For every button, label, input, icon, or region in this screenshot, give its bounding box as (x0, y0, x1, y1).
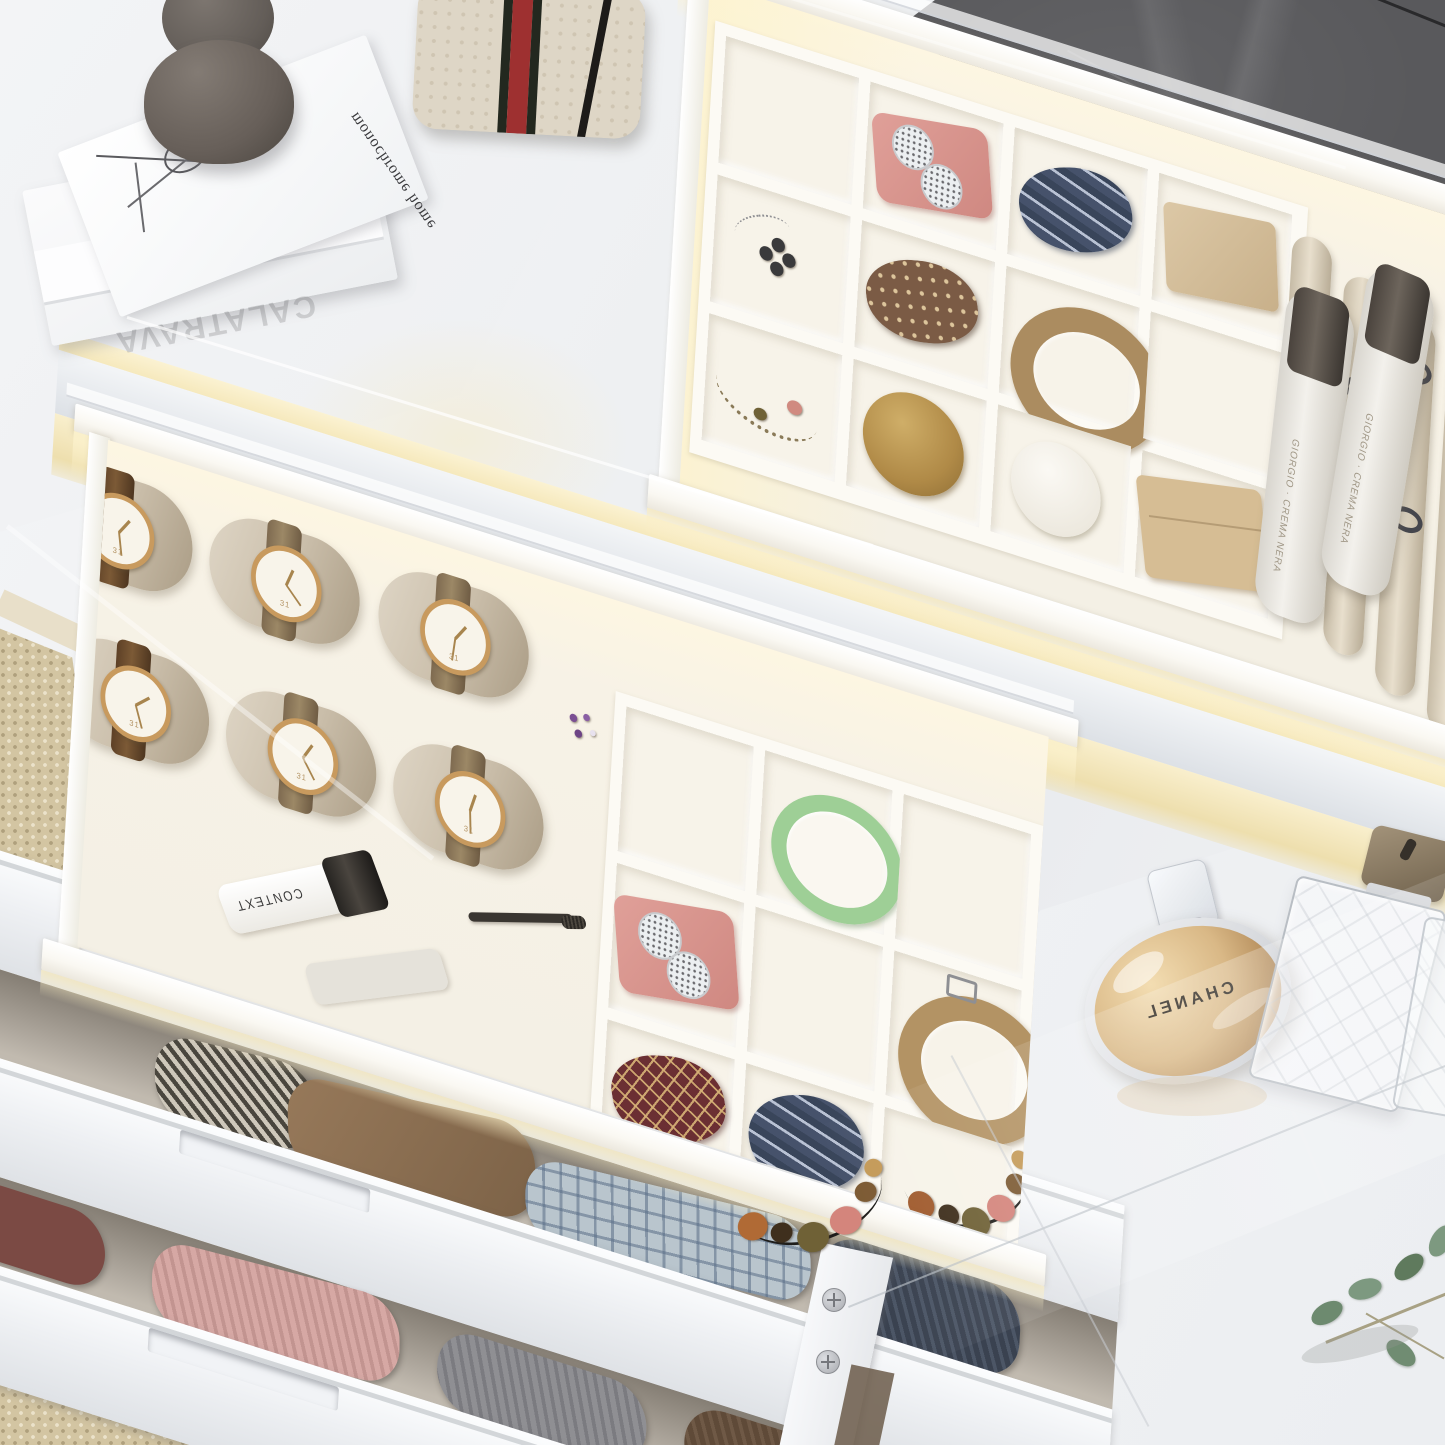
tan-jewelry-box (1163, 201, 1279, 313)
vanity-product-photo: 31 31 31 31 31 (0, 0, 1445, 1445)
watch-pillow: 31 (390, 731, 546, 883)
brown-dotted-tie (861, 255, 983, 348)
book-cover-title-wrap: monochrome home (346, 109, 440, 233)
compartment-cell (618, 706, 754, 891)
screw (822, 1288, 846, 1312)
compartment-cell (846, 359, 987, 528)
compartment-cell (702, 313, 843, 482)
tube-brand-text: CONTEXT (233, 885, 305, 914)
compartment-cell (999, 266, 1140, 435)
white-round-box (1008, 430, 1103, 549)
book-cover-title: monochrome home (346, 109, 440, 233)
watch: 31 (98, 656, 173, 751)
watch-pillow: 31 (206, 505, 362, 657)
vase-lower-bulb (144, 40, 294, 164)
watch: 31 (433, 762, 508, 857)
compartment-cell (1135, 450, 1276, 619)
clear-cosmetic-tube (303, 948, 450, 1006)
screw (816, 1350, 840, 1374)
watch: 31 (418, 590, 493, 685)
compartment-cell (1152, 173, 1293, 342)
bead-chain-bracelet (708, 346, 825, 458)
watch-pillow: 31 (86, 625, 212, 777)
cosmetic-pouch (411, 0, 646, 140)
navy-striped-tie (1012, 167, 1140, 254)
eucalyptus-sprig (1300, 1215, 1445, 1405)
compartment-cell (1143, 311, 1284, 480)
mascara-wand (468, 912, 574, 923)
compartment-cell (895, 794, 1031, 979)
spray-bottle-label: GIORGIO · CREMA NERA (1338, 411, 1375, 546)
round-leather-box (860, 379, 967, 510)
decor-vase (120, 0, 310, 190)
compartment-cell (756, 750, 892, 935)
spray-bottle-label: GIORGIO · CREMA NERA (1270, 437, 1300, 575)
tan-envelope-pouch (1135, 474, 1270, 593)
compartment-cell (608, 863, 744, 1048)
mascara-brush-tip (560, 915, 587, 929)
compartment-cell (747, 907, 883, 1092)
compartment-cell (863, 82, 1004, 251)
watch: 31 (249, 536, 324, 631)
compartment-cell (710, 175, 851, 344)
compartment-cell (1007, 127, 1148, 296)
compartment-cell (718, 36, 859, 205)
watch-pillow: 31 (375, 559, 531, 711)
pouch-zipper (575, 0, 615, 140)
compartment-cell (854, 220, 995, 389)
